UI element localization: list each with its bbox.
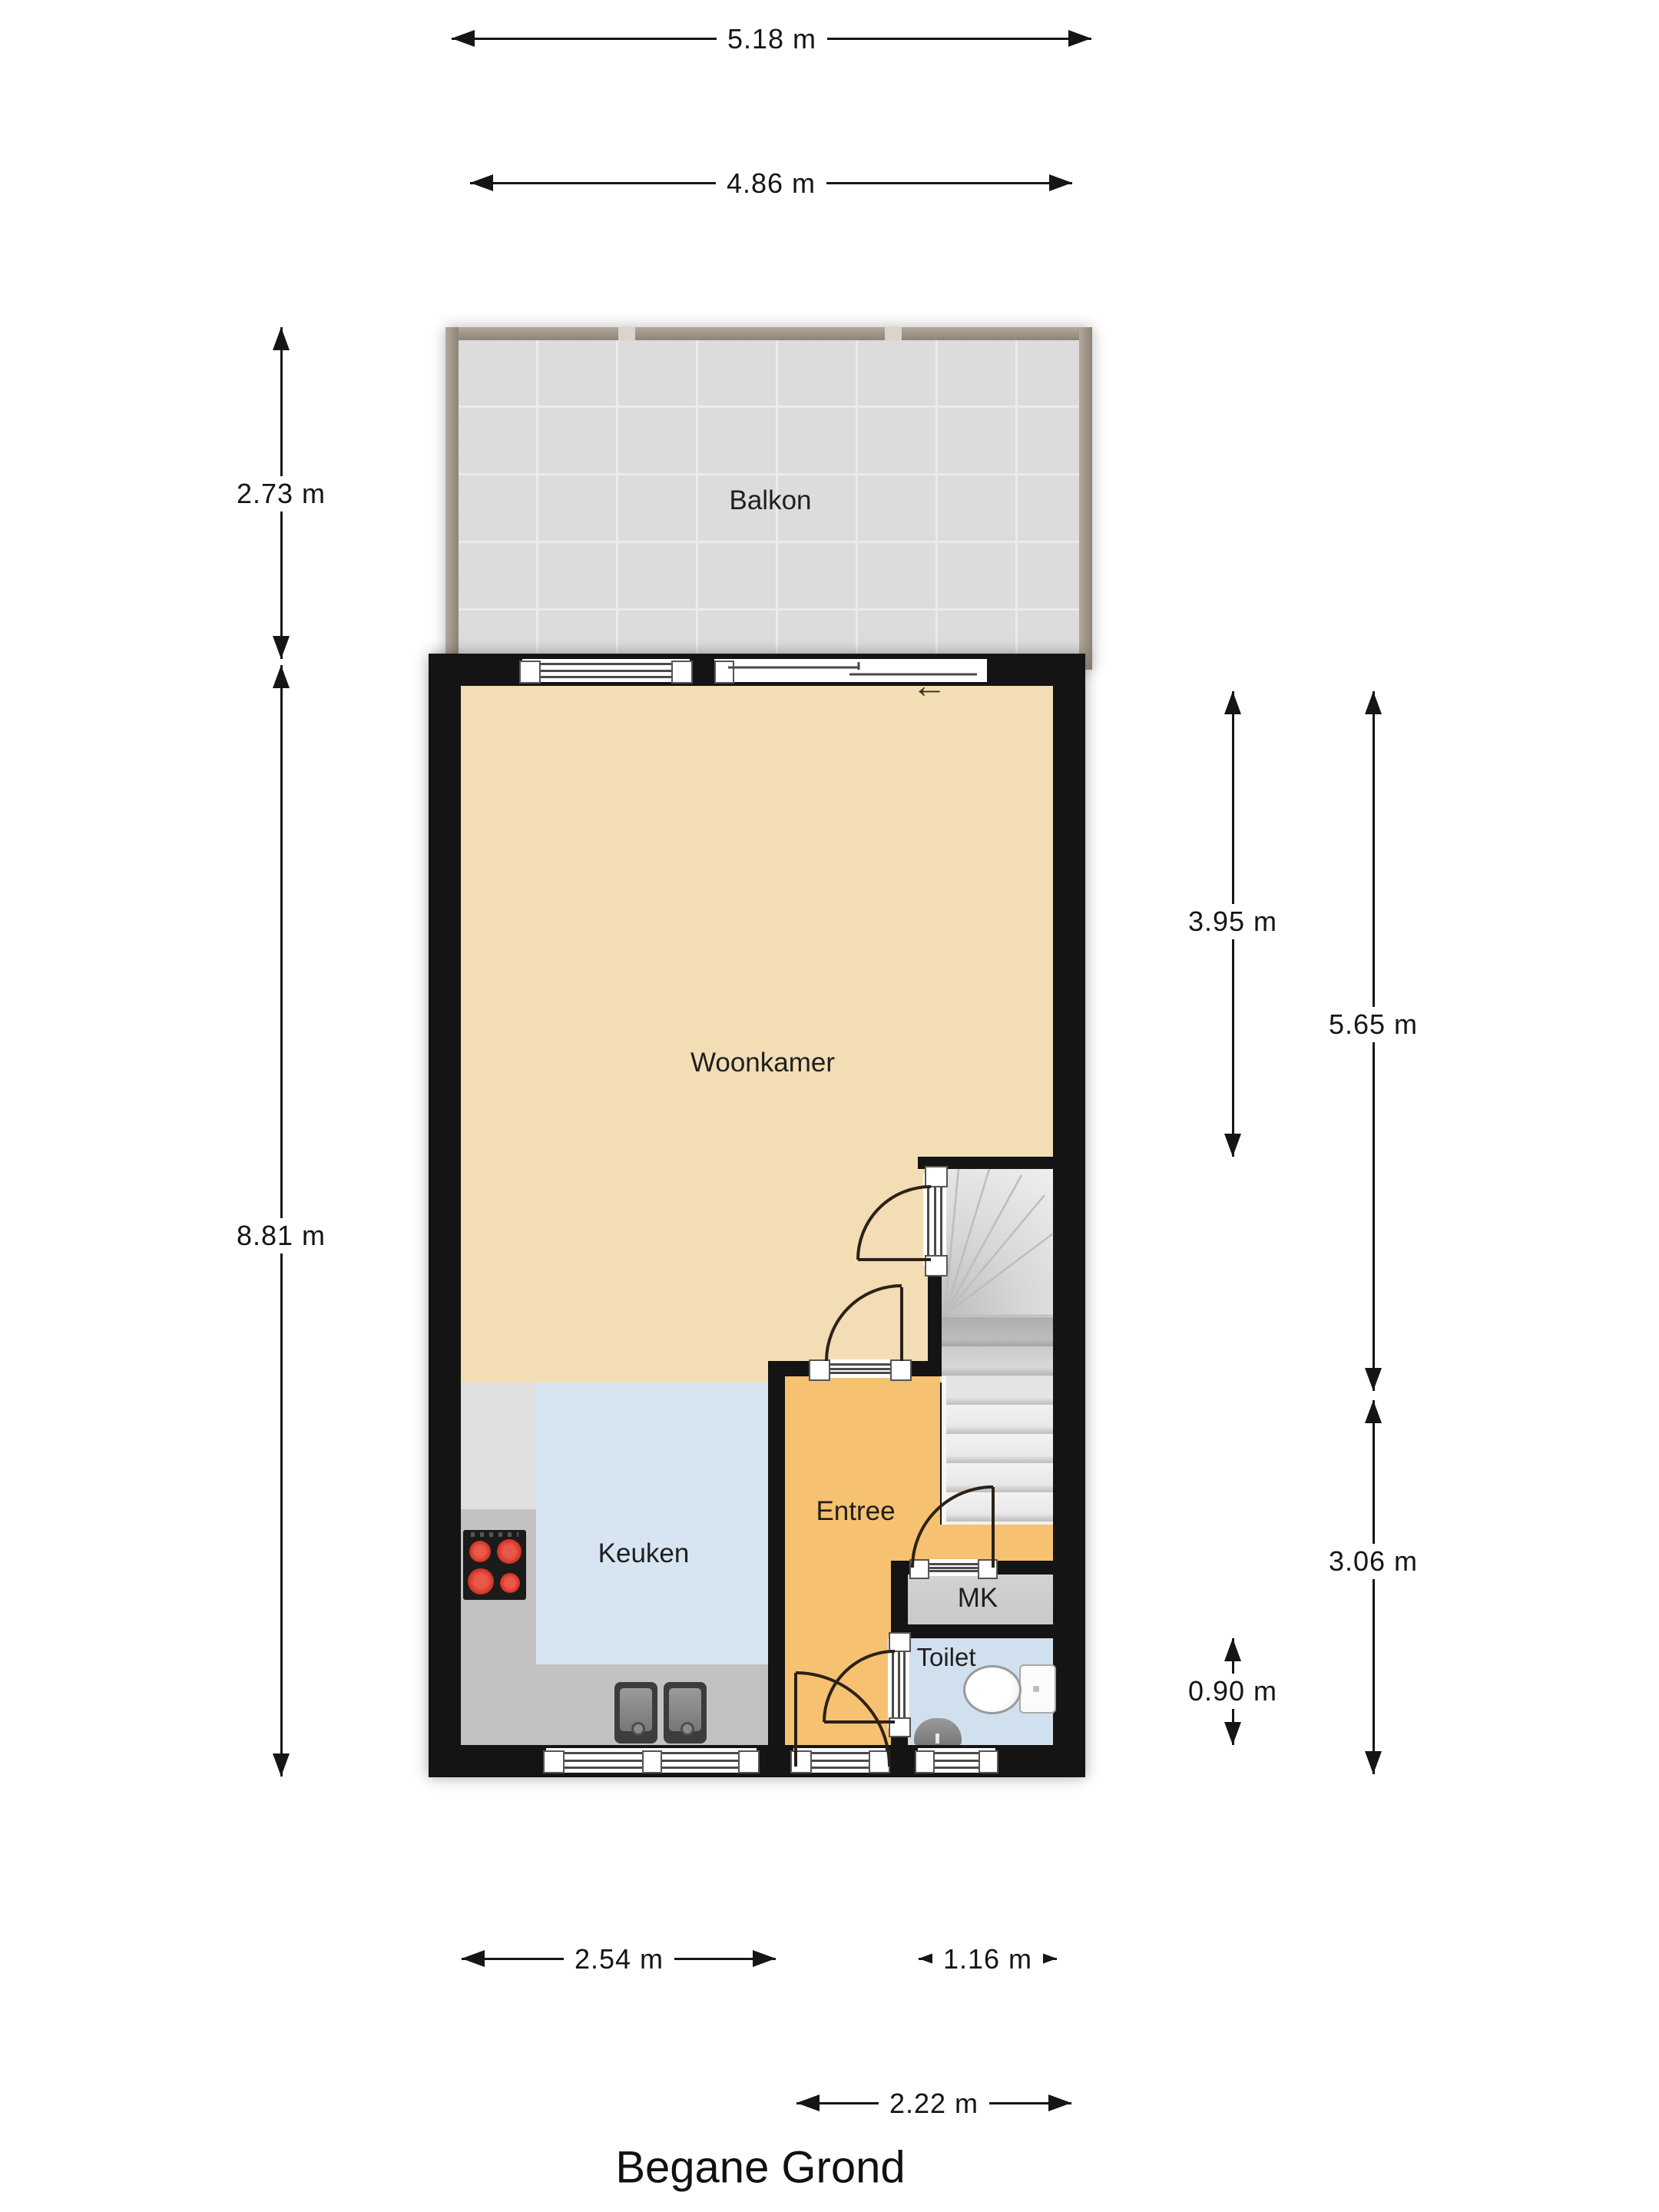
window-woonkamer [522,659,690,682]
window-jamb [738,1750,760,1773]
dim-label: 0.90 m [1177,1674,1288,1709]
room-entree [940,1525,1053,1561]
window-jamb [671,661,693,684]
door-jamb [925,1166,948,1187]
door-jamb [890,1359,912,1381]
room-label-woonkamer: Woonkamer [690,1048,835,1078]
window-jamb [915,1750,935,1773]
door-jamb [790,1750,812,1773]
room-label-entree: Entree [816,1496,895,1527]
stairs-winder [942,1169,1053,1317]
door-jamb [889,1632,911,1652]
cooktop-controls [471,1532,518,1537]
wall-keuken-entree [768,1376,785,1745]
railing-gap [618,327,635,340]
burner [469,1541,491,1562]
dim-label: 2.73 m [226,476,336,512]
burner [497,1539,522,1564]
dim-label: 2.22 m [879,2086,989,2121]
window-jamb [519,661,541,684]
door-jamb [889,1717,911,1737]
stairs-shadow [942,1317,1053,1402]
balcony-railing-right [1079,327,1092,670]
kitchen-cabinet [461,1382,536,1509]
door-jamb [869,1750,890,1773]
dim-label: 5.65 m [1318,1007,1429,1042]
door-jamb [714,661,734,684]
dim-label: 4.86 m [716,166,826,201]
door-jamb [809,1359,830,1381]
room-entree [785,1376,891,1745]
wall-mk-toilet [891,1624,1053,1638]
room-label-balkon: Balkon [729,485,811,516]
railing-gap [885,327,902,340]
toilet-cistern [1019,1664,1056,1714]
kitchen-sink [614,1682,657,1743]
burner [500,1573,520,1593]
burner [468,1568,494,1594]
room-label-toilet: Toilet [916,1643,975,1672]
door-jamb [909,1559,929,1579]
dim-label: 2.54 m [564,1942,674,1977]
window-jamb [979,1750,998,1773]
room-label-mk: MK [958,1583,998,1614]
door-jamb [925,1255,948,1277]
toilet-bowl [963,1665,1022,1714]
dim-label: 3.06 m [1318,1544,1429,1579]
floor-plan: 5.18 m 4.86 m 2.73 m 8.81 m 3.95 m 5.65 … [0,0,1659,2212]
stairs-stringer [942,1376,946,1525]
window-mullion [642,1750,662,1773]
window-jamb [543,1750,565,1773]
room-entree [891,1376,940,1561]
cooktop [463,1530,526,1600]
balcony-railing-left [445,327,459,670]
balcony-railing-top [445,327,1092,340]
dim-label: 5.18 m [717,22,827,57]
door-jamb [978,1559,998,1579]
kitchen-sink [664,1682,707,1743]
balcony: Balkon [445,327,1092,670]
dim-label: 8.81 m [226,1218,336,1253]
dim-label: 3.95 m [1177,904,1288,939]
doorway-stairs [923,1174,946,1266]
room-label-keuken: Keuken [598,1538,690,1569]
page-title: Begane Grond [615,2142,905,2194]
slide-direction-arrow-icon: ← [899,668,960,702]
dim-label: 1.16 m [932,1942,1043,1977]
